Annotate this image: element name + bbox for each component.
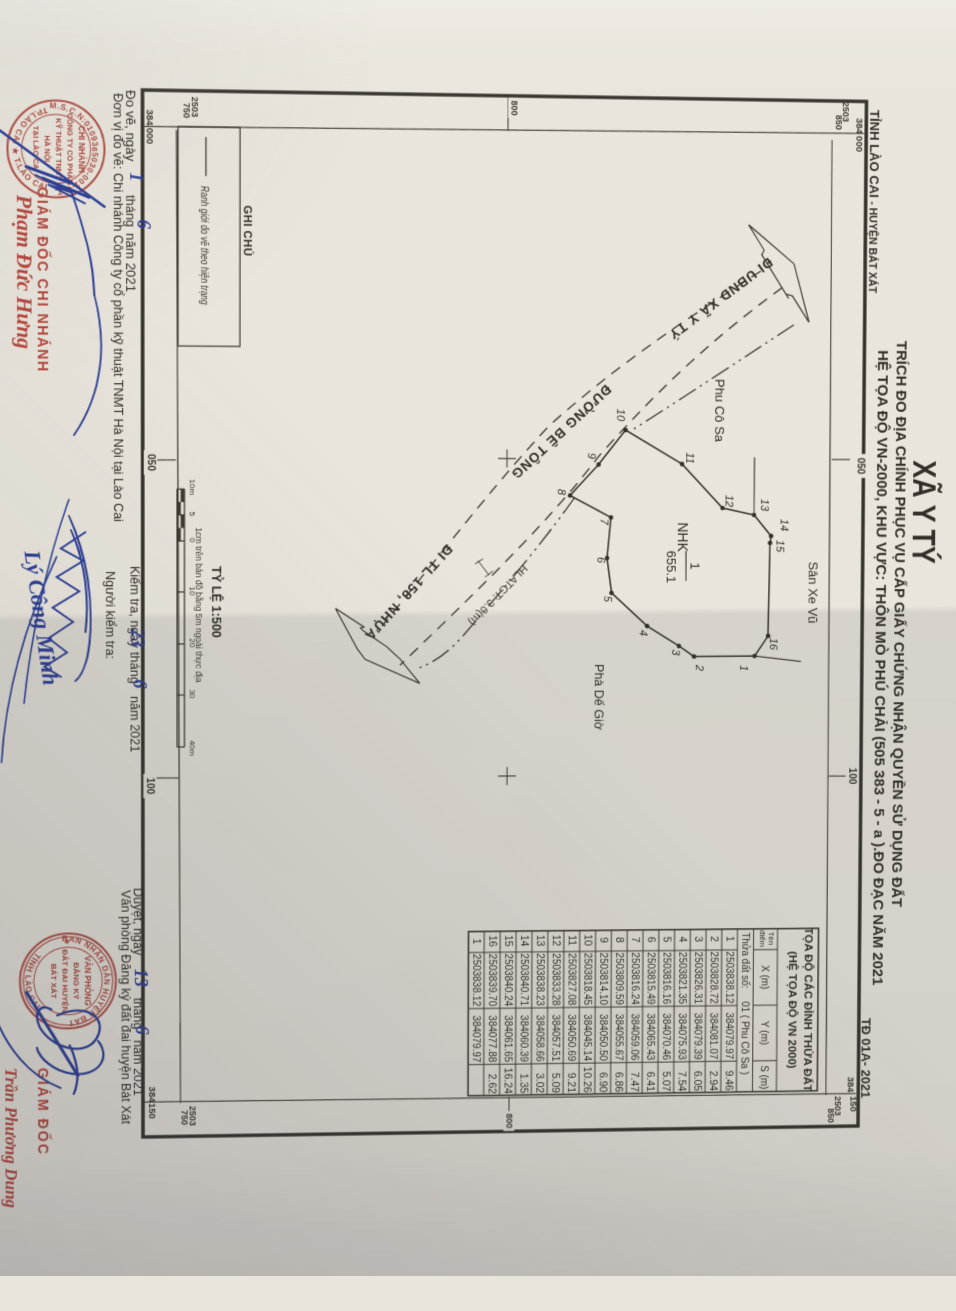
svg-text:2503838.12: 2503838.12 — [470, 954, 481, 1007]
svg-text:01 ( Phu Cô Sa ): 01 ( Phu Cô Sa ) — [738, 1001, 749, 1075]
svg-text:6.90: 6.90 — [596, 1072, 608, 1093]
svg-text:ĐĂNG KÝ: ĐĂNG KÝ — [72, 962, 81, 1000]
svg-text:3: 3 — [670, 649, 682, 656]
svg-text:2503826.31: 2503826.31 — [691, 952, 702, 1005]
svg-text:100: 100 — [846, 768, 857, 785]
svg-text:30: 30 — [188, 690, 197, 700]
svg-text:9.46: 9.46 — [722, 1070, 734, 1090]
svg-text:S (m): S (m) — [758, 1065, 769, 1089]
svg-text:6: 6 — [595, 557, 607, 564]
svg-text:2503818.45: 2503818.45 — [581, 953, 592, 1006]
svg-text:điểm: điểm — [758, 930, 767, 948]
svg-text:2503840.24: 2503840.24 — [501, 954, 512, 1007]
svg-text:7.54: 7.54 — [675, 1071, 687, 1091]
svg-text:5.07: 5.07 — [659, 1071, 671, 1091]
svg-text:Phu Cô Sa: Phu Cô Sa — [712, 379, 727, 443]
svg-text:2503838.12: 2503838.12 — [723, 951, 734, 1004]
svg-text:12: 12 — [723, 495, 735, 507]
svg-text:13: 13 — [131, 969, 151, 987]
svg-text:23: 23 — [127, 628, 147, 647]
svg-text:16: 16 — [767, 638, 779, 651]
svg-text:384: 384 — [146, 1086, 157, 1103]
svg-text:Tên: Tên — [766, 932, 775, 946]
svg-text:14: 14 — [778, 519, 790, 531]
svg-text:năm 2021: năm 2021 — [127, 696, 141, 752]
svg-text:Sân Xe Vũ: Sân Xe Vũ — [805, 562, 820, 624]
svg-text:3.02: 3.02 — [533, 1073, 545, 1094]
svg-text:TỈNH LÀO CAI - HUYỆN BÁT XÁT: TỈNH LÀO CAI - HUYỆN BÁT XÁT — [866, 110, 882, 294]
svg-text:6: 6 — [133, 219, 153, 229]
svg-text:X (m): X (m) — [759, 965, 770, 989]
svg-text:384079.97: 384079.97 — [722, 1012, 733, 1059]
svg-text:000: 000 — [144, 128, 155, 144]
svg-text:1.35: 1.35 — [517, 1073, 529, 1094]
svg-text:150: 150 — [847, 1096, 858, 1112]
svg-text:10m: 10m — [188, 479, 197, 495]
svg-text:7: 7 — [598, 519, 610, 526]
svg-text:8: 8 — [555, 489, 567, 496]
svg-text:384057.51: 384057.51 — [549, 1015, 560, 1062]
svg-text:5: 5 — [188, 512, 197, 517]
svg-text:050: 050 — [145, 454, 156, 471]
svg-text:384: 384 — [853, 118, 864, 135]
svg-text:NHK: NHK — [675, 522, 691, 552]
svg-text:2503840.71: 2503840.71 — [517, 953, 528, 1006]
svg-text:16.24: 16.24 — [501, 1068, 513, 1094]
svg-text:10: 10 — [581, 934, 593, 946]
svg-text:1: 1 — [126, 172, 146, 182]
svg-text:384077.88: 384077.88 — [485, 1015, 496, 1063]
svg-text:Duyệt, ngày: Duyệt, ngày — [131, 888, 145, 956]
svg-text:ĐI TL 158, NHỰA: ĐI TL 158, NHỰA — [362, 542, 456, 644]
svg-text:9.21: 9.21 — [565, 1073, 577, 1094]
svg-text:384075.93: 384075.93 — [675, 1013, 686, 1060]
svg-text:2503821.35: 2503821.35 — [676, 952, 687, 1005]
svg-text:655.1: 655.1 — [664, 551, 679, 584]
svg-text:ĐƯỜNG BÊ TÔNG: ĐƯỜNG BÊ TÔNG — [508, 382, 614, 483]
svg-text:13: 13 — [758, 499, 770, 512]
svg-text:850: 850 — [834, 115, 844, 130]
svg-text:2503827.08: 2503827.08 — [565, 953, 576, 1006]
svg-text:2503815.49: 2503815.49 — [644, 952, 655, 1005]
svg-text:GIÁM ĐỐC: GIÁM ĐỐC — [35, 1068, 52, 1156]
svg-text:ĐI UBND XÃ Y TÝ: ĐI UBND XÃ Y TÝ — [666, 255, 776, 343]
svg-text:15: 15 — [502, 935, 514, 947]
svg-text:384070.46: 384070.46 — [660, 1013, 671, 1060]
svg-text:2: 2 — [707, 936, 719, 942]
svg-text:6: 6 — [130, 679, 150, 689]
svg-text:384050.69: 384050.69 — [565, 1014, 576, 1061]
svg-text:2503833.28: 2503833.28 — [549, 953, 560, 1006]
svg-text:TRÍCH ĐO ĐỊA CHÍNH PHỤC VỤ CẤP: TRÍCH ĐO ĐỊA CHÍNH PHỤC VỤ CẤP GIẤY CHỨN… — [888, 341, 911, 908]
svg-text:Đơn vị đo vẽ: Chi nhánh Công t: Đơn vị đo vẽ: Chi nhánh Công ty cổ phần … — [111, 93, 126, 522]
svg-text:6: 6 — [644, 937, 656, 943]
svg-text:384065.43: 384065.43 — [644, 1013, 655, 1060]
svg-text:Phà Dế Giờ: Phà Dế Giờ — [592, 664, 606, 730]
svg-text:384: 384 — [845, 1077, 856, 1093]
svg-text:384059.06: 384059.06 — [628, 1014, 639, 1061]
svg-text:384045.14: 384045.14 — [581, 1014, 592, 1061]
svg-text:750: 750 — [182, 103, 192, 119]
svg-text:100: 100 — [144, 778, 155, 795]
svg-text:750: 750 — [180, 1110, 190, 1125]
svg-text:2.62: 2.62 — [485, 1074, 497, 1095]
svg-text:050: 050 — [855, 458, 866, 475]
svg-text:2503814.10: 2503814.10 — [597, 953, 608, 1006]
svg-text:HÀ NỘI: HÀ NỘI — [43, 135, 52, 162]
svg-text:9: 9 — [585, 453, 597, 459]
svg-text:800: 800 — [505, 1114, 515, 1129]
svg-text:(HỆ TỌA ĐỘ VN 2000): (HỆ TỌA ĐỘ VN 2000) — [785, 951, 798, 1069]
svg-text:★: ★ — [63, 938, 72, 945]
svg-text:2503816.24: 2503816.24 — [628, 952, 639, 1005]
svg-text:1: 1 — [738, 665, 750, 671]
svg-text:TỌA ĐỘ CÁC ĐỈNH THỬA ĐẤT: TỌA ĐỘ CÁC ĐỈNH THỬA ĐẤT — [801, 928, 815, 1092]
svg-text:000: 000 — [853, 136, 864, 152]
svg-text:16: 16 — [486, 935, 498, 947]
svg-text:6.86: 6.86 — [612, 1072, 624, 1092]
svg-text:2503828.72: 2503828.72 — [707, 952, 718, 1005]
svg-text:384061.65: 384061.65 — [501, 1015, 512, 1063]
svg-text:GHI CHÚ: GHI CHÚ — [241, 205, 254, 256]
svg-text:2503838.23: 2503838.23 — [533, 953, 544, 1006]
svg-text:6.05: 6.05 — [691, 1071, 703, 1091]
svg-text:384055.67: 384055.67 — [612, 1014, 623, 1061]
svg-text:2.94: 2.94 — [707, 1071, 719, 1091]
svg-text:14: 14 — [518, 935, 530, 947]
svg-text:850: 850 — [826, 1108, 836, 1123]
svg-text:Lý Công Minh: Lý Công Minh — [19, 548, 64, 687]
svg-text:8: 8 — [613, 937, 625, 943]
svg-text:11: 11 — [684, 452, 696, 464]
svg-text:BÁT XÁT: BÁT XÁT — [49, 964, 58, 999]
svg-text:11: 11 — [565, 935, 577, 946]
svg-text:384058.66: 384058.66 — [533, 1015, 544, 1062]
svg-text:Văn phòng Đăng ký đất đai huyệ: Văn phòng Đăng ký đất đai huyện Bát Xát — [118, 890, 132, 1125]
svg-text:ĐẤT ĐAI HUYỆN: ĐẤT ĐAI HUYỆN — [60, 949, 70, 1012]
svg-text:3: 3 — [692, 936, 704, 942]
svg-text:7: 7 — [629, 937, 641, 943]
svg-text:5: 5 — [601, 596, 613, 603]
svg-text:4: 4 — [637, 630, 649, 636]
svg-text:1cm trên bản đồ bằng 5m ngoài: 1cm trên bản đồ bằng 5m ngoài thực địa — [193, 527, 203, 682]
svg-text:10.26: 10.26 — [580, 1067, 592, 1093]
svg-text:Người kiểm tra:: Người kiểm tra: — [103, 571, 117, 659]
svg-text:9: 9 — [597, 937, 609, 943]
svg-text:150: 150 — [146, 1103, 157, 1119]
svg-text:12: 12 — [549, 935, 561, 947]
svg-text:15: 15 — [774, 540, 786, 553]
svg-text:384079.97: 384079.97 — [469, 1015, 480, 1063]
svg-text:4: 4 — [676, 936, 688, 942]
svg-text:13: 13 — [533, 935, 545, 947]
svg-text:TỶ LỆ 1:500: TỶ LỆ 1:500 — [209, 566, 224, 638]
svg-text:6.41: 6.41 — [644, 1071, 656, 1091]
svg-text:10: 10 — [614, 409, 626, 422]
svg-text:Y (m): Y (m) — [758, 1021, 769, 1045]
svg-text:2503839.70: 2503839.70 — [485, 954, 496, 1007]
svg-text:HLATGT: 3.0(m): HLATGT: 3.0(m) — [466, 562, 530, 628]
svg-text:Thửa đất số:: Thửa đất số: — [739, 932, 751, 988]
svg-text:384: 384 — [144, 109, 155, 126]
svg-text:Trần Phương Dung: Trần Phương Dung — [1, 1067, 21, 1208]
svg-text:384081.07: 384081.07 — [707, 1013, 718, 1060]
svg-text:1: 1 — [687, 562, 702, 569]
svg-text:GIÁM ĐỐC CHI NHÁNH: GIÁM ĐỐC CHI NHÁNH — [34, 187, 52, 373]
svg-text:800: 800 — [509, 100, 519, 115]
svg-text:Ranh giới đo vẽ theo hiện trạn: Ranh giới đo vẽ theo hiện trạng — [198, 186, 209, 305]
svg-text:CÔNG TY CỔ PHẦN: CÔNG TY CỔ PHẦN — [65, 113, 75, 185]
svg-text:CHI NHÁNH: CHI NHÁNH — [77, 126, 87, 174]
svg-text:năm 2021: năm 2021 — [131, 1040, 145, 1096]
svg-text:384079.39: 384079.39 — [691, 1013, 702, 1060]
svg-text:1: 1 — [723, 936, 735, 942]
svg-text:384050.50: 384050.50 — [596, 1014, 607, 1061]
svg-text:40m: 40m — [188, 740, 197, 756]
svg-text:TĐ 01A- 2021: TĐ 01A- 2021 — [858, 1018, 873, 1098]
svg-text:VĂN PHÒNG: VĂN PHÒNG — [83, 956, 94, 1006]
svg-text:2503809.59: 2503809.59 — [613, 952, 624, 1005]
svg-text:7.47: 7.47 — [628, 1072, 640, 1092]
svg-text:5.09: 5.09 — [549, 1073, 561, 1094]
svg-text:5: 5 — [660, 936, 672, 942]
svg-text:Phạm Đức Hưng: Phạm Đức Hưng — [12, 194, 37, 350]
svg-text:384060.39: 384060.39 — [517, 1015, 528, 1062]
svg-text:1: 1 — [470, 938, 482, 944]
svg-text:XÃ Y TÝ: XÃ Y TÝ — [904, 460, 944, 564]
svg-text:2503816.16: 2503816.16 — [660, 952, 671, 1005]
svg-text:6: 6 — [132, 1025, 152, 1035]
svg-text:TẠI LÀO CAI: TẠI LÀO CAI — [31, 126, 40, 172]
svg-text:2: 2 — [693, 664, 705, 671]
